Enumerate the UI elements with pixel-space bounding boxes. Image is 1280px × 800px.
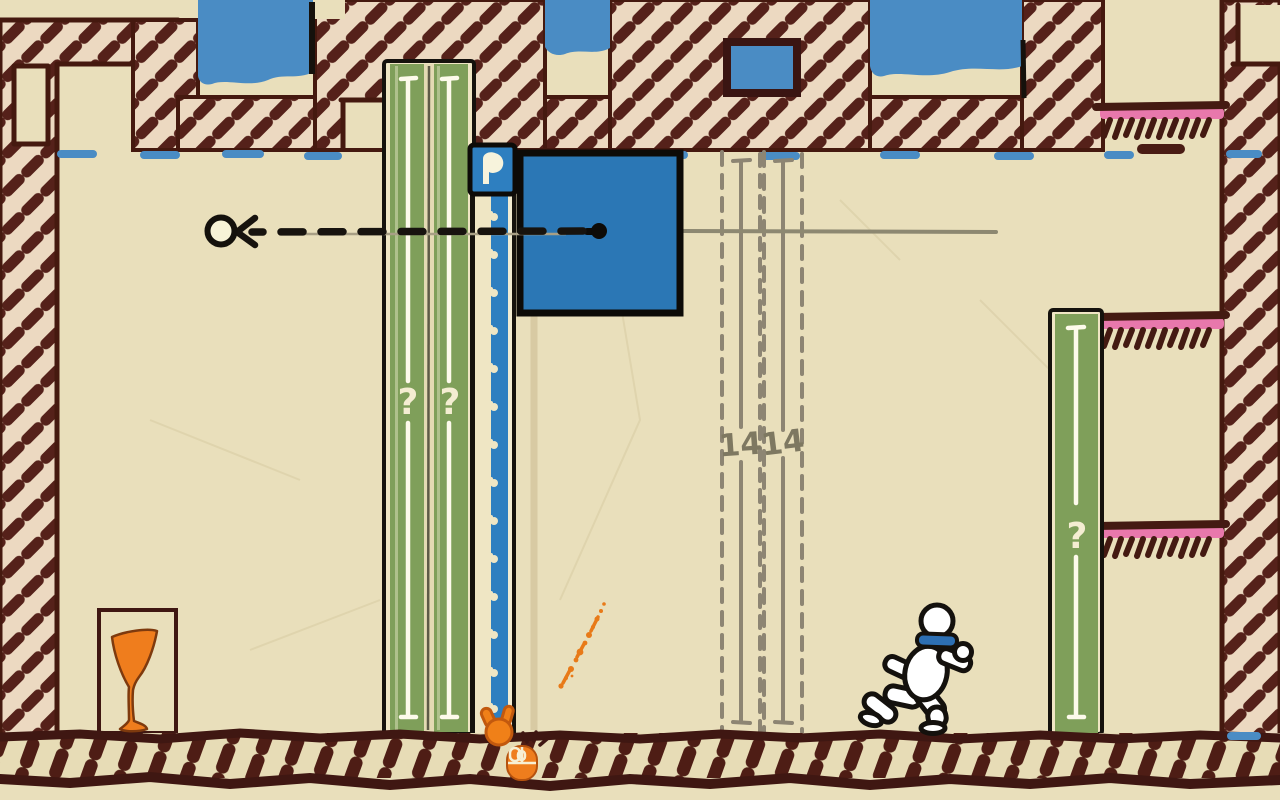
sky-window-1	[198, 0, 313, 85]
crenel-step	[312, 0, 345, 19]
zipper-pull-tab[interactable]	[470, 145, 515, 194]
guide-line-right	[684, 231, 996, 232]
floor	[0, 732, 1280, 786]
aim-target-circle	[208, 218, 235, 245]
game-canvas: 14 14 ? ? ?	[0, 0, 1280, 800]
ghost-measure-value-1: 14	[718, 426, 764, 465]
right-wall	[1222, 0, 1280, 780]
ghost-measure-value-2: 14	[759, 423, 806, 464]
player-front-foot	[921, 723, 945, 734]
green-strip-left[interactable]: ? ?	[384, 61, 474, 734]
green-strip-right-question: ?	[1067, 516, 1088, 557]
floor-blue-dash	[1227, 732, 1261, 740]
box-anchor-dot	[591, 223, 607, 239]
player-scarf	[917, 633, 957, 647]
right-wall-notch	[1233, 5, 1280, 64]
sky-window-3	[870, 0, 1022, 76]
sky-window-3-edge	[1023, 40, 1024, 98]
ceiling-band	[178, 97, 1022, 150]
green-strip-left-question-2: ?	[440, 382, 461, 423]
green-strip-right[interactable]: ?	[1050, 310, 1102, 734]
game-stage: 14 14 ? ? ?	[0, 0, 1280, 800]
wall-window	[727, 42, 797, 93]
sky-window-2	[545, 0, 610, 55]
green-strip-left-question-1: ?	[398, 382, 419, 423]
top-pillar-right	[1022, 0, 1103, 150]
